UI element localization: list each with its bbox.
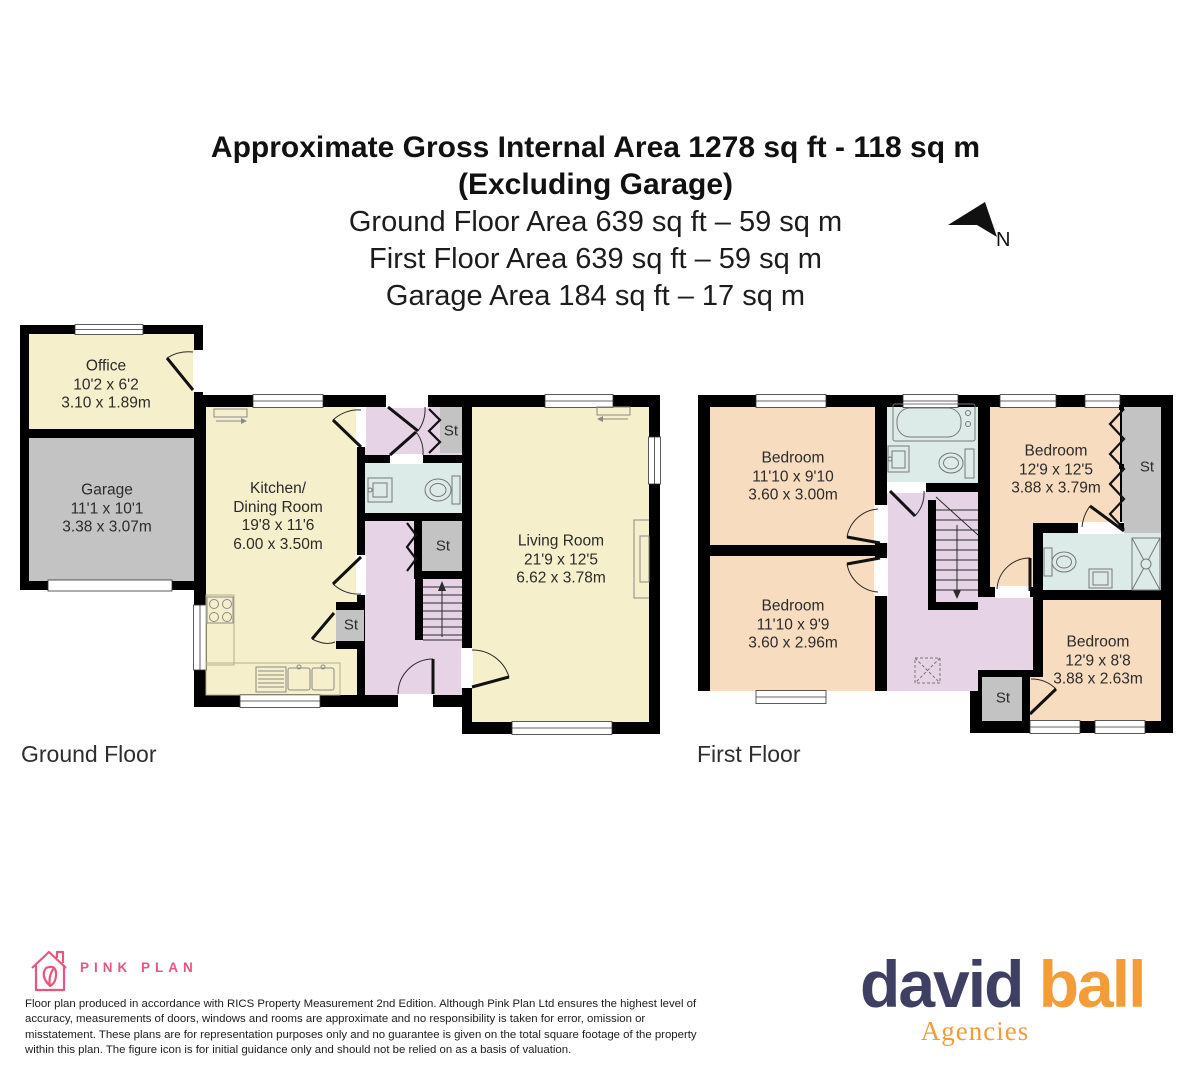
storage-label-first-top: St — [1140, 459, 1154, 476]
agency-subtitle: Agencies — [905, 1016, 1045, 1047]
floorplan-page: Approximate Gross Internal Area 1278 sq … — [0, 0, 1191, 1080]
bedroom-right-label: Bedroom 12'9 x 12'5 3.88 x 3.79m — [1011, 442, 1101, 498]
storage-label-entry: St — [444, 423, 458, 440]
disclaimer-text: Floor plan produced in accordance with R… — [25, 997, 710, 1059]
office-label: Office 10'2 x 6'2 3.10 x 1.89m — [61, 357, 151, 413]
bedroom-front-label: Bedroom 11'10 x 9'10 3.60 x 3.00m — [748, 449, 838, 505]
bedroom-small-label: Bedroom 12'9 x 8'8 3.88 x 2.63m — [1053, 633, 1143, 689]
ground-floor-title: Ground Floor — [21, 741, 157, 768]
storage-label-hall: St — [436, 538, 450, 555]
storage-label-kitchen: St — [344, 617, 358, 634]
storage-label-first-wing: St — [996, 690, 1010, 707]
agency-name-ball: ball — [1039, 947, 1145, 1021]
wc-room — [365, 463, 462, 513]
pink-plan-brand: PINK PLAN — [80, 960, 198, 975]
agency-name-david: david — [860, 947, 1022, 1021]
landing-extension — [978, 597, 1033, 670]
bedroom-back-label: Bedroom 11'10 x 9'9 3.60 x 2.96m — [748, 597, 838, 653]
first-floor-title: First Floor — [697, 741, 801, 768]
kitchen-label: Kitchen/ Dining Room 19'8 x 11'6 6.00 x … — [233, 480, 323, 554]
svg-text:N: N — [996, 229, 1010, 251]
north-arrow-icon: N — [948, 202, 1010, 251]
living-room-label: Living Room 21'9 x 12'5 6.62 x 3.78m — [516, 532, 606, 588]
agency-logo: david ball — [860, 946, 1180, 1022]
pink-plan-logo-icon — [28, 946, 72, 994]
garage-label: Garage 11'1 x 10'1 3.38 x 3.07m — [62, 481, 152, 537]
